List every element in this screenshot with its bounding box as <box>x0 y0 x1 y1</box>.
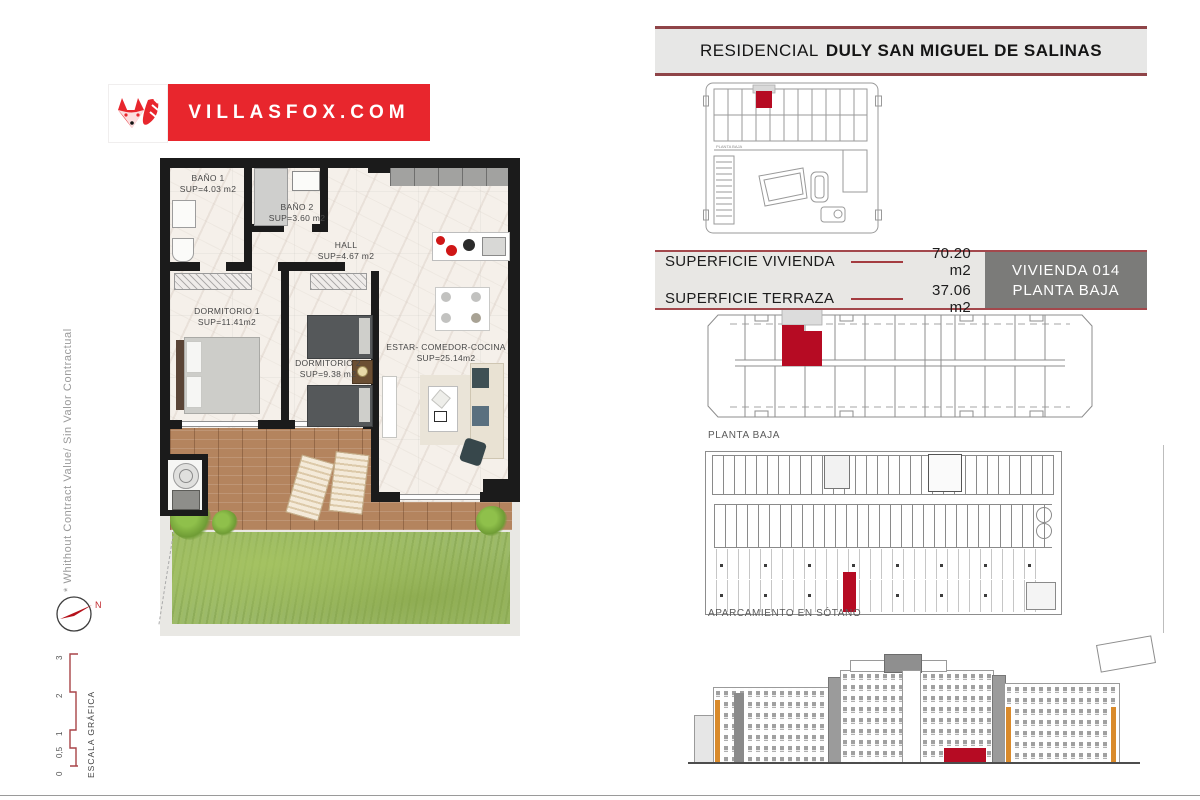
place-setting <box>471 313 481 323</box>
villasfox-logo: VILLASFOX.COM <box>108 84 430 141</box>
room-area: SUP=9.38 m2 <box>295 369 361 380</box>
plant <box>212 510 238 536</box>
column-dots <box>720 594 1040 597</box>
scale-bar: 3 2 1 0,5 0 ESCALA GRÁFICA <box>46 646 110 794</box>
scale-tick: 0 <box>55 771 64 776</box>
pan <box>463 239 475 251</box>
wall <box>160 158 170 460</box>
surface-label: SUPERFICIE VIVIENDA <box>665 253 843 270</box>
leader-line <box>851 298 903 300</box>
headboard <box>176 340 184 410</box>
surface-value: 37.06 m2 <box>911 282 975 316</box>
scale-tick: 1 <box>55 731 64 736</box>
wardrobe <box>174 273 252 290</box>
tv-sideboard <box>382 376 397 438</box>
wall <box>258 420 295 429</box>
hob-burner <box>446 245 457 256</box>
sofa-cushion <box>472 406 489 426</box>
parking-diagram <box>705 451 1062 615</box>
wall <box>312 224 328 232</box>
highlighted-parking-space <box>843 572 856 612</box>
wall <box>170 262 200 271</box>
appliance <box>172 490 200 510</box>
sofa-cushion <box>472 368 489 388</box>
wall <box>508 158 520 502</box>
room-name: ESTAR- COMEDOR-COCINA <box>386 342 505 353</box>
disclaimer-note: * Whithout Contract Value/ Sin Valor Con… <box>62 328 74 592</box>
surface-rows: SUPERFICIE VIVIENDA 70.20 m2 SUPERFICIE … <box>655 252 985 308</box>
toilet <box>172 238 194 262</box>
room-name: DORMITORIO 2 <box>295 358 361 369</box>
room-area: SUP=3.60 m2 <box>269 213 325 224</box>
compass: N <box>52 590 110 638</box>
wardrobe <box>310 273 367 290</box>
pillow <box>359 318 370 354</box>
room-label: BAÑO 2 SUP=3.60 m2 <box>269 202 325 224</box>
kitchen-sink <box>482 237 506 256</box>
pillow <box>359 388 370 422</box>
garden-grass <box>172 532 510 624</box>
surface-row: SUPERFICIE TERRAZA 37.06 m2 <box>665 282 975 316</box>
compass-needle <box>60 605 92 619</box>
residencial-banner: RESIDENCIAL DULY SAN MIGUEL DE SALINAS <box>655 26 1147 76</box>
surface-label: SUPERFICIE TERRAZA <box>665 290 843 307</box>
ramp-box <box>1026 582 1056 610</box>
room-area: SUP=25.14m2 <box>386 353 505 364</box>
room-area: SUP=11.41m2 <box>194 317 260 328</box>
stair-tower <box>734 693 744 762</box>
unit-identifier-box: VIVIENDA 014 PLANTA BAJA <box>985 252 1147 308</box>
ramp-circle <box>1036 507 1052 523</box>
orange-accent <box>1111 707 1116 762</box>
stairwell <box>824 455 850 489</box>
pillow <box>186 376 202 408</box>
banner-title: DULY SAN MIGUEL DE SALINAS <box>826 41 1102 61</box>
wall <box>379 492 400 502</box>
parking-stall-row <box>712 455 1054 495</box>
stair-core <box>902 670 921 764</box>
wall <box>170 420 182 429</box>
orange-accent <box>715 700 720 762</box>
wall <box>244 168 252 270</box>
planta-baja-diagram <box>700 308 1100 430</box>
planta-baja-label: PLANTA BAJA <box>708 430 780 441</box>
compass-north-label: N <box>95 600 102 610</box>
unit-floor: PLANTA BAJA <box>1013 282 1120 299</box>
unit-number: VIVIENDA 014 <box>1012 262 1120 279</box>
stairwell <box>928 454 962 492</box>
room-name: BAÑO 2 <box>269 202 325 213</box>
wall <box>281 271 289 420</box>
room-name: BAÑO 1 <box>180 173 236 184</box>
room-name: DORMITORIO 1 <box>194 306 260 317</box>
building-elevation <box>688 645 1140 767</box>
logo-domain: VILLASFOX.COM <box>168 84 430 141</box>
room-label: DORMITORIO 1 SUP=11.41m2 <box>194 306 260 328</box>
pillow <box>186 341 202 373</box>
ground-line <box>688 762 1140 764</box>
table-decor <box>434 411 447 422</box>
apartment-floorplan: BAÑO 1 SUP=4.03 m2 BAÑO 2 SUP=3.60 m2 HA… <box>160 158 525 636</box>
leader-line <box>851 261 903 263</box>
scale-tick: 2 <box>55 693 64 698</box>
brochure-page: RESIDENCIAL DULY SAN MIGUEL DE SALINAS V… <box>0 0 1200 800</box>
elevation-left-wing <box>713 687 830 764</box>
scale-tick: 0,5 <box>55 746 64 758</box>
room-label: BAÑO 1 SUP=4.03 m2 <box>180 173 236 195</box>
sliding-door <box>182 421 258 427</box>
ramp-circle <box>1036 523 1052 539</box>
room-area: SUP=4.03 m2 <box>180 184 236 195</box>
site-overview-diagram: PLANTA BAJA <box>703 80 883 240</box>
room-label: DORMITORIO 2 SUP=9.38 m2 <box>295 358 361 380</box>
bathroom-sink <box>172 200 196 228</box>
bathroom-sink <box>292 171 320 191</box>
fox-icon <box>108 84 168 143</box>
column-dots <box>720 564 1040 567</box>
banner-prefix: RESIDENCIAL <box>700 41 819 61</box>
site-overview-floor-label: PLANTA BAJA <box>716 144 742 149</box>
elevation-right-wing <box>1004 683 1120 764</box>
place-setting <box>471 292 481 302</box>
fox-icon-svg <box>114 90 162 138</box>
surface-value: 70.20 m2 <box>911 245 975 279</box>
page-divider <box>1163 445 1164 633</box>
page-frame-line <box>0 795 1200 796</box>
plant <box>476 506 508 536</box>
parking-label: APARCAMIENTO EN SÓTANO <box>708 608 861 619</box>
place-setting <box>441 292 451 302</box>
surface-info-panel: SUPERFICIE VIVIENDA 70.20 m2 SUPERFICIE … <box>655 250 1147 310</box>
wall <box>278 262 345 271</box>
room-label: ESTAR- COMEDOR-COCINA SUP=25.14m2 <box>386 342 505 364</box>
wall <box>160 158 520 168</box>
sun-lounger <box>328 451 369 515</box>
kitchen-counter <box>390 168 508 186</box>
wall <box>226 262 252 271</box>
room-label: HALL SUP=4.67 m2 <box>318 240 374 262</box>
highlighted-unit-elevation <box>944 748 986 762</box>
orange-accent <box>1006 707 1011 762</box>
scale-tick: 3 <box>55 655 64 660</box>
scale-bar-label: ESCALA GRÁFICA <box>86 691 96 778</box>
hob-burner <box>436 236 445 245</box>
context-block-outline <box>1096 635 1156 672</box>
place-setting <box>441 313 451 323</box>
sliding-door <box>400 494 480 500</box>
washing-machine-drum <box>179 469 193 483</box>
parking-stall-row <box>714 504 1052 548</box>
surface-row: SUPERFICIE VIVIENDA 70.20 m2 <box>665 245 975 279</box>
room-area: SUP=4.67 m2 <box>318 251 374 262</box>
wall <box>483 479 518 502</box>
room-name: HALL <box>318 240 374 251</box>
